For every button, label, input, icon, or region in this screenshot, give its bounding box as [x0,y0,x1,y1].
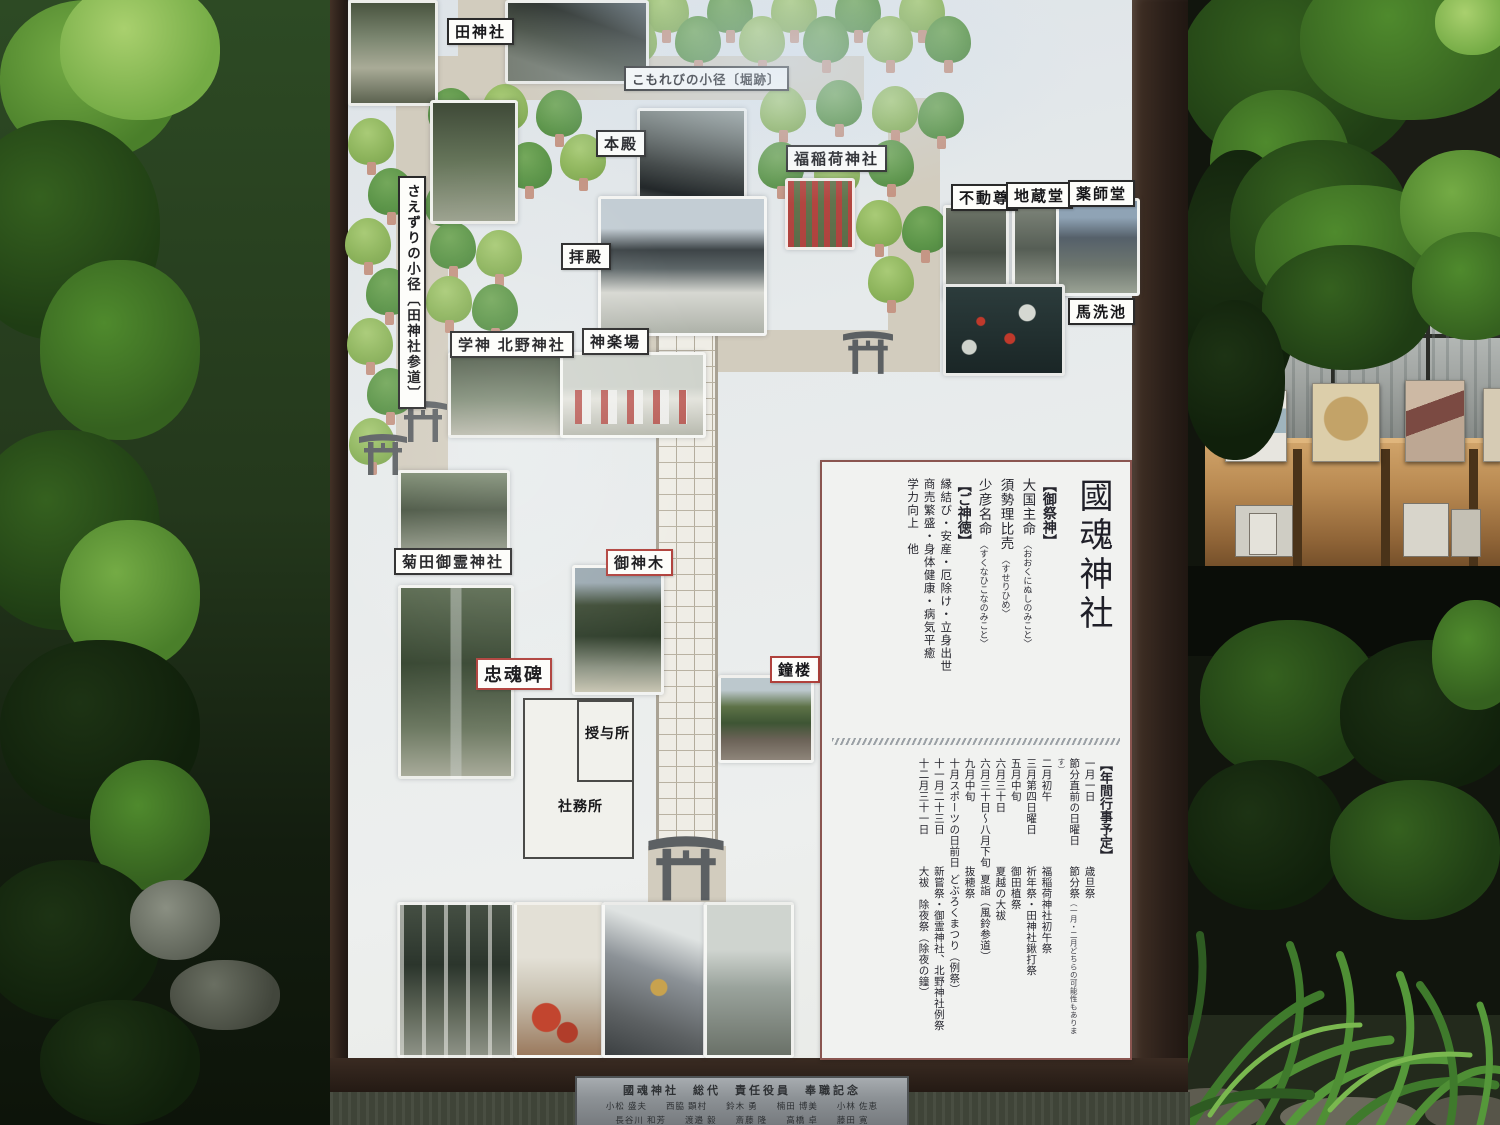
display-card [1483,388,1500,462]
deity-kana: 〈すせりひめ〉 [1001,555,1011,618]
photo-flowers-banners [514,902,604,1058]
rock [170,960,280,1030]
display-card [1405,380,1465,462]
deity-item: 大国主命〈おおくにぬしのみこと〉 [1018,478,1037,740]
rock [130,880,220,960]
plaque-names-row: 長谷川 和芳 渡邉 毅 斎藤 隆 高橋 卓 藤田 寛 [577,1114,907,1125]
event-date: 二月初午 [1041,758,1052,802]
photo-saezuri-path [430,100,518,224]
saezuri-path-label: さえずりの小径〔田神社参道〕 [398,176,426,409]
photo-shoro [718,675,814,763]
gosaijin-heading: 【御祭神】 [1039,478,1056,740]
event-entry: 九月中旬抜穂祭 [962,758,974,1046]
shelf-item [1249,513,1277,555]
deity-kana: 〈すくなひこなのみこと〉 [979,540,989,648]
event-name: 新嘗祭・御霊神社、北野神社例祭 [933,866,944,1031]
juyosho-label: 授与所 [579,722,636,744]
deity-item: 須勢理比売〈すせりひめ〉 [996,478,1015,740]
torii-gate-icon [842,322,894,380]
deity-name: 少彦名命 [977,478,992,536]
event-date: 十月スポーツの日前日 [948,758,959,868]
photo-festival-crowd [704,902,794,1058]
photo-festival-procession [602,902,706,1058]
photo-shrine-gate [397,902,515,1058]
shelf-divider [1381,449,1390,569]
event-name: 夏越の大祓 [994,866,1005,921]
event-entry: 十二月三十一日大祓 除夜祭（除夜の鐘） [916,758,928,1046]
event-entry: 十一月二十三日新嘗祭・御霊神社、北野神社例祭 [932,758,944,1046]
shrine-title: 國魂神社 [1072,478,1112,740]
event-entry: 五月中旬御田植祭 [1008,758,1020,1046]
photo-of-shrine-map-signboard: 授与所 社務所 田神社 こもれびの小径〔堀跡〕 本殿 拝殿 福稲荷神社 不動尊 … [0,0,1500,1125]
tree-icon [760,86,806,146]
deity-name: 須勢理比売 [999,478,1014,551]
event-entry: 二月初午福稲荷神社初午祭 [1039,758,1051,1046]
tree-icon [476,230,522,290]
ta-jinja-label: 田神社 [447,18,514,45]
photo-uma-arai-pond [943,284,1065,376]
event-entry: 六月三十日夏越の大祓 [993,758,1005,1046]
komorebi-path-label: こもれびの小径〔堀跡〕 [624,66,789,91]
foliage-blob [1262,245,1432,370]
photo-fuku-inari [785,178,855,250]
shrine-info-panel: 國魂神社 【御祭神】 大国主命〈おおくにぬしのみこと〉 須勢理比売〈すせりひめ〉… [820,460,1132,1060]
event-date: 十一月二十三日 [933,758,944,835]
tree-icon [868,256,914,316]
tree-icon [816,80,862,140]
foliage-blob [1185,300,1285,460]
chukonhi-label: 忠魂碑 [476,658,552,690]
kitano-jinja-label: 学神 北野神社 [450,331,574,358]
display-card [1312,383,1380,462]
event-entry: 節分直前の日曜日節分祭（一月・二月どちらの可能性もあります） [1055,758,1080,1046]
goshinboku-label: 御神木 [606,549,673,576]
event-name: 福稲荷神社初午祭 [1041,866,1052,954]
fuku-inari-label: 福稲荷神社 [786,145,887,172]
board-frame-right [1132,0,1188,1092]
virtue-item: 学力向上 他 [905,478,919,740]
foliage-blob [40,1000,200,1125]
grass-plants [1150,875,1500,1125]
event-name: 節分祭 [1068,866,1079,899]
tree-icon [925,16,971,76]
tree-icon [918,92,964,152]
jizodo-label: 地蔵堂 [1006,182,1073,209]
kikuta-goryo-label: 菊田御霊神社 [394,548,512,575]
photo-kikuta-goryo [398,470,510,558]
photo-goshinboku [572,565,664,695]
hatched-divider [832,738,1120,745]
gyoji-heading: 【年間行事予定】 [1098,758,1113,1046]
event-entry: 三月第四日曜日祈年祭・田神社鍬打祭 [1024,758,1036,1046]
board-frame-left [330,0,348,1092]
shamusho-label: 社務所 [552,795,609,817]
event-entry: 六月三十日～八月下旬夏詣（風鈴参道） [978,758,990,1046]
event-name: 御田植祭 [1010,866,1021,910]
torii-gate-icon [646,830,726,902]
event-date: 六月三十日～八月下旬 [979,758,990,868]
event-name: 抜穂祭 [964,866,975,899]
event-date: 五月中旬 [1010,758,1021,802]
haiden-label: 拝殿 [561,243,611,270]
event-date: 三月第四日曜日 [1025,758,1036,835]
shelf-item [1451,509,1481,557]
tree-icon [872,86,918,146]
uma-arai-ike-label: 馬洗池 [1068,298,1135,325]
deities-and-virtues-section: 國魂神社 【御祭神】 大国主命〈おおくにぬしのみこと〉 須勢理比売〈すせりひめ〉… [902,478,1120,740]
honden-label: 本殿 [596,130,646,157]
annual-events-section: 【年間行事予定】 一月一日歳旦祭 節分直前の日曜日節分祭（一月・二月どちらの可能… [913,758,1122,1046]
event-date: 九月中旬 [964,758,975,802]
foliage-blob [40,260,200,440]
event-entry: 一月一日歳旦祭 [1082,758,1094,1046]
goshintoku-heading: 【ご神徳】 [954,478,971,740]
event-name: 祈年祭・田神社鍬打祭 [1025,866,1036,976]
event-name: 大祓 除夜祭（除夜の鐘） [918,866,929,998]
tree-icon [867,16,913,76]
photo-haiden [598,196,767,336]
yakushido-label: 薬師堂 [1068,180,1135,207]
event-name: どぶろくまつり（例祭） [948,874,959,995]
event-date: 十二月三十一日 [918,758,929,835]
kaguraba-label: 神楽場 [582,328,649,355]
virtue-item: 縁結び・安産・厄除け・立身出世 [938,478,952,740]
event-name: 夏詣（風鈴参道） [979,874,990,962]
tree-icon [856,200,902,260]
deity-kana: 〈おおくにぬしのみこと〉 [1022,540,1032,648]
shelf-item [1403,503,1449,557]
tree-icon [426,276,472,336]
deity-name: 大国主命 [1020,478,1035,536]
tree-icon [803,16,849,76]
plaque-title: 國魂神社 総代 責任役員 奉職記念 [577,1082,907,1098]
event-name: 歳旦祭 [1084,866,1095,899]
deity-item: 少彦名命〈すくなひこなのみこと〉 [974,478,993,740]
memorial-plaque: 國魂神社 総代 責任役員 奉職記念 小松 盛夫 西脇 顕村 鈴木 勇 楠田 博美… [575,1076,909,1125]
photo-yakushido [1056,198,1140,296]
photo-ta-jinja [348,0,438,106]
event-date: 六月三十日 [994,758,1005,813]
virtue-item: 商売繁盛・身体健康・病気平癒 [921,478,935,740]
photo-kagura-figures [575,390,687,424]
event-entry: 十月スポーツの日前日どぶろくまつり（例祭） [947,758,959,1046]
shelf-divider [1293,449,1302,569]
tree-icon [430,222,476,282]
event-date: 一月一日 [1084,758,1095,802]
event-date: 節分直前の日曜日 [1068,758,1079,846]
plaque-names-row: 小松 盛夫 西脇 顕村 鈴木 勇 楠田 博美 小林 佐恵 [577,1100,907,1112]
photo-kitano-jinja [448,352,564,438]
shoro-label: 鐘楼 [770,656,820,683]
